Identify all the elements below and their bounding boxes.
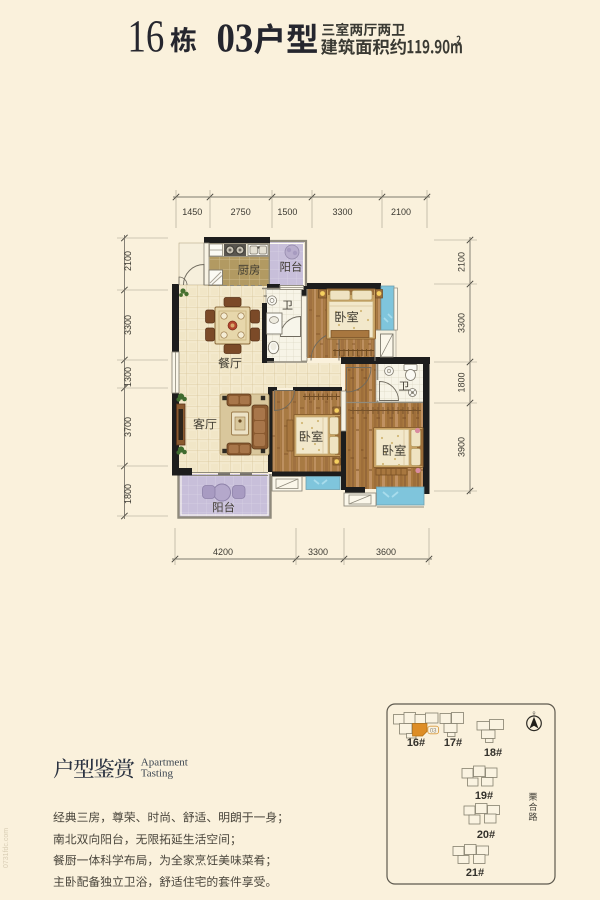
svg-text:4200: 4200 bbox=[213, 547, 233, 557]
svg-text:2100: 2100 bbox=[391, 207, 411, 217]
svg-text:1500: 1500 bbox=[277, 207, 297, 217]
svg-text:21#: 21# bbox=[466, 867, 484, 879]
svg-text:3300: 3300 bbox=[457, 313, 467, 333]
svg-text:1800: 1800 bbox=[457, 372, 467, 392]
svg-text:3300: 3300 bbox=[332, 207, 352, 217]
svg-text:18#: 18# bbox=[484, 747, 502, 759]
svg-text:20#: 20# bbox=[477, 829, 495, 841]
svg-text:2100: 2100 bbox=[457, 252, 467, 272]
svg-text:3300: 3300 bbox=[308, 547, 328, 557]
svg-text:19#: 19# bbox=[475, 790, 493, 802]
svg-text:1450: 1450 bbox=[182, 207, 202, 217]
svg-text:3600: 3600 bbox=[376, 547, 396, 557]
svg-text:1300: 1300 bbox=[123, 367, 133, 387]
svg-text:1800: 1800 bbox=[123, 484, 133, 504]
svg-text:2100: 2100 bbox=[123, 251, 133, 271]
svg-text:16#: 16# bbox=[407, 737, 425, 749]
svg-text:3700: 3700 bbox=[123, 417, 133, 437]
svg-text:17#: 17# bbox=[444, 737, 462, 749]
svg-text:3900: 3900 bbox=[457, 437, 467, 457]
svg-text:0731fdc.com: 0731fdc.com bbox=[3, 828, 10, 868]
svg-text:3300: 3300 bbox=[123, 315, 133, 335]
svg-text:03: 03 bbox=[430, 728, 437, 734]
svg-text:Tasting: Tasting bbox=[141, 768, 174, 780]
svg-text:2750: 2750 bbox=[231, 207, 251, 217]
